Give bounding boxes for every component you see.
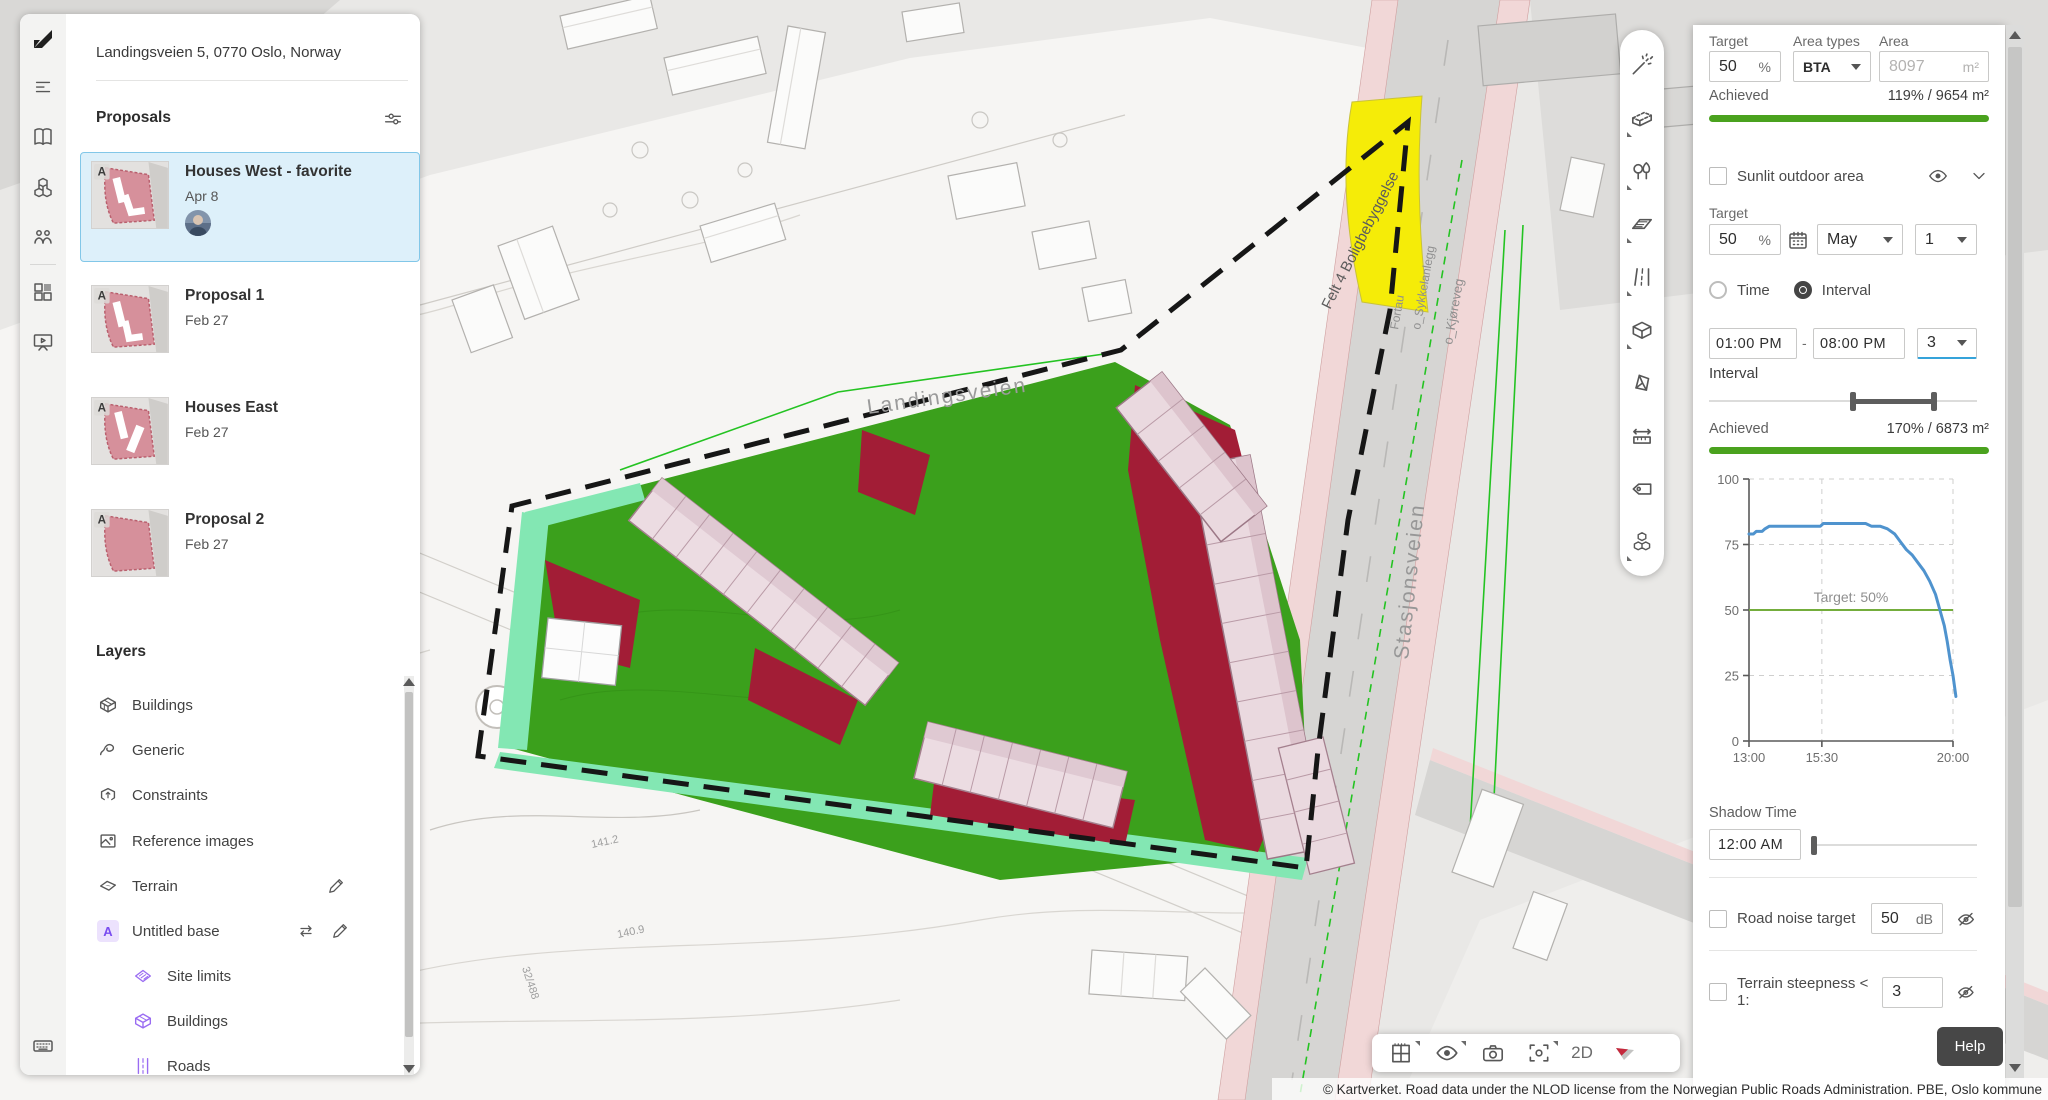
- bta-achieved-row: Achieved119% / 9654 m²: [1709, 88, 1989, 104]
- magic-wand-tool[interactable]: [1622, 38, 1662, 91]
- road-noise-row: Road noise target 50dB: [1709, 903, 1977, 934]
- svg-text:A: A: [98, 290, 107, 303]
- layer-row-site-limits[interactable]: Site limits: [131, 961, 416, 991]
- svg-text:0: 0: [1732, 734, 1739, 749]
- volume-tool[interactable]: [1622, 303, 1662, 356]
- avatar: [185, 210, 211, 236]
- proposal-thumbnail: A: [91, 161, 169, 229]
- map-attribution: © Kartverket. Road data under the NLOD l…: [1272, 1078, 2048, 1100]
- nav-rail: [20, 14, 66, 1075]
- bta-target-input[interactable]: 50%: [1709, 51, 1781, 82]
- time-radio-label: Time: [1737, 282, 1770, 299]
- sunlight-chart: 025507510013:0015:3020:00Target: 50%: [1703, 473, 1993, 773]
- roads-icon: [131, 1054, 155, 1075]
- terrain-steepness-input[interactable]: 3: [1882, 977, 1943, 1008]
- layer-row-generic[interactable]: Generic: [96, 735, 416, 765]
- svg-text:100: 100: [1717, 473, 1739, 487]
- swap-icon[interactable]: [296, 921, 316, 941]
- proposal-title: Proposal 2: [185, 511, 264, 529]
- shadow-time-label: Shadow Time: [1709, 805, 1797, 821]
- constraints-icon: [96, 783, 120, 807]
- divider: [96, 80, 408, 81]
- svg-text:A: A: [98, 514, 107, 527]
- buildings-icon: [131, 1009, 155, 1033]
- interval-hours-select[interactable]: 3: [1917, 328, 1977, 359]
- svg-text:Target: 50%: Target: 50%: [1814, 589, 1889, 605]
- day-select[interactable]: 1: [1915, 224, 1977, 255]
- visibility-eye-icon[interactable]: [1927, 165, 1949, 187]
- camera-tool[interactable]: [1470, 1036, 1516, 1070]
- help-button[interactable]: Help: [1937, 1027, 2003, 1066]
- area-plan-tool[interactable]: [1378, 1036, 1424, 1070]
- svg-text:75: 75: [1725, 538, 1739, 553]
- analysis-panel: Target Area types Area 50% BTA 8097m² Ac…: [1693, 25, 2005, 1100]
- left-sidebar-panel: Landingsveien 5, 0770 Oslo, Norway Propo…: [20, 14, 420, 1075]
- prism-tool[interactable]: [1622, 356, 1662, 409]
- label-tag-tool[interactable]: [1622, 462, 1662, 515]
- proposal-card-proposal-1[interactable]: A Proposal 1 Feb 27: [80, 276, 420, 368]
- interval-radio-label: Interval: [1822, 282, 1871, 299]
- generic-icon: [96, 738, 120, 762]
- svg-text:50: 50: [1725, 603, 1739, 618]
- site-limits-icon: [131, 964, 155, 988]
- interval-slider-handle-start[interactable]: [1850, 392, 1856, 411]
- svg-text:25: 25: [1725, 669, 1739, 684]
- apps-grid-icon[interactable]: [26, 275, 60, 309]
- eye-off-icon[interactable]: [1955, 908, 1977, 930]
- design-toolbar: [1620, 30, 1664, 576]
- present-icon[interactable]: [26, 325, 60, 359]
- sun-target-label: Target: [1709, 205, 1748, 221]
- proposal-thumbnail: A: [91, 509, 169, 577]
- proposals-title: Proposals: [96, 109, 171, 127]
- interval-radio[interactable]: [1794, 281, 1812, 299]
- calendar-icon[interactable]: [1786, 228, 1810, 252]
- layers-scrollbar[interactable]: [404, 676, 414, 1075]
- svg-text:13:00: 13:00: [1733, 750, 1766, 765]
- interval-slider-label: Interval: [1709, 365, 1758, 382]
- layer-row-reference-images[interactable]: Reference images: [96, 826, 416, 856]
- area-types-label: Area types: [1793, 33, 1860, 49]
- sun-achieved-bar: [1709, 447, 1989, 454]
- keyboard-shortcuts-icon[interactable]: [26, 1029, 60, 1063]
- project-address[interactable]: Landingsveien 5, 0770 Oslo, Norway: [96, 44, 341, 61]
- sunlit-checkbox[interactable]: [1709, 167, 1727, 185]
- terrain-steepness-checkbox[interactable]: [1709, 983, 1727, 1001]
- compass-north-arrow[interactable]: [1602, 1036, 1648, 1070]
- building-tool[interactable]: [1622, 91, 1662, 144]
- target-label: Target: [1709, 33, 1748, 49]
- shadow-time-input[interactable]: 12:00 AM: [1709, 829, 1801, 860]
- proposals-panel-icon[interactable]: [26, 70, 60, 104]
- time-range-separator: -: [1802, 335, 1807, 351]
- base-a-badge: A: [96, 919, 120, 943]
- application-window: Landingsveien Stasjonsveien Felt 4 Bolig…: [0, 0, 2048, 1100]
- edit-pencil-icon[interactable]: [330, 921, 350, 941]
- divider: [1709, 950, 1977, 951]
- vegetation-tool[interactable]: [1622, 144, 1662, 197]
- road-tool[interactable]: [1622, 250, 1662, 303]
- proposals-filter-icon[interactable]: [376, 102, 410, 136]
- mode-2d-button[interactable]: 2D: [1562, 1036, 1602, 1070]
- time-radio[interactable]: [1709, 281, 1727, 299]
- svg-text:20:00: 20:00: [1937, 750, 1970, 765]
- layers-title: Layers: [96, 643, 146, 661]
- sun-target-input[interactable]: 50%: [1709, 224, 1781, 255]
- proposal-date: Apr 8: [185, 188, 352, 204]
- month-select[interactable]: May: [1817, 224, 1903, 255]
- bta-achieved-bar: [1709, 115, 1989, 122]
- view-toolbar: 2D: [1372, 1034, 1680, 1072]
- chevron-down-icon: [1851, 64, 1861, 70]
- proposal-date: Feb 27: [185, 536, 264, 552]
- interval-end-time-input[interactable]: 08:00 PM: [1813, 328, 1905, 359]
- area-value-input[interactable]: 8097m²: [1879, 51, 1989, 82]
- proposal-thumbnail: A: [91, 397, 169, 465]
- library-icon[interactable]: [26, 120, 60, 154]
- chevron-down-icon: [1883, 237, 1893, 243]
- eye-off-icon[interactable]: [1955, 981, 1977, 1003]
- panel-scrollbar[interactable]: [2006, 25, 2024, 1078]
- proposal-date: Feb 27: [185, 312, 264, 328]
- area-label: Area: [1879, 33, 1909, 49]
- forma-logo-icon[interactable]: [26, 22, 60, 56]
- chevron-down-icon: [1957, 340, 1967, 346]
- terrain-steepness-row: Terrain steepness < 1: 3: [1709, 975, 1977, 1009]
- interval-range-slider[interactable]: [1709, 400, 1977, 402]
- road-noise-input[interactable]: 50dB: [1871, 903, 1943, 934]
- terrain-icon: [96, 874, 120, 898]
- buildings-icon: [96, 693, 120, 717]
- divider: [1709, 877, 1977, 878]
- sunlit-label: Sunlit outdoor area: [1737, 168, 1864, 185]
- proposal-date: Feb 27: [185, 424, 278, 440]
- proposal-card-houses-west[interactable]: A Houses West - favorite Apr 8: [80, 152, 420, 262]
- shadow-time-slider[interactable]: [1811, 844, 1977, 846]
- svg-text:15:30: 15:30: [1806, 750, 1839, 765]
- rail-divider: [30, 264, 56, 265]
- measure-tool[interactable]: [1622, 409, 1662, 462]
- terrain-steepness-label: Terrain steepness < 1:: [1737, 975, 1882, 1009]
- layer-row-buildings[interactable]: Buildings: [96, 690, 416, 720]
- chevron-down-icon: [1957, 237, 1967, 243]
- sun-achieved-row: Achieved170% / 6873 m²: [1709, 421, 1989, 437]
- add-proposal-icon[interactable]: [414, 102, 420, 136]
- svg-text:A: A: [98, 402, 107, 415]
- proposal-card-proposal-2[interactable]: A Proposal 2 Feb 27: [80, 500, 420, 592]
- interval-start-time-input[interactable]: 01:00 PM: [1709, 328, 1797, 359]
- proposal-card-houses-east[interactable]: A Houses East Feb 27: [80, 388, 420, 480]
- proposal-title: Houses West - favorite: [185, 163, 352, 181]
- blocks-tool[interactable]: [1622, 515, 1662, 568]
- proposal-thumbnail: A: [91, 285, 169, 353]
- time-mode-radios: Time Interval: [1709, 281, 1871, 299]
- shadow-slider-handle[interactable]: [1811, 836, 1817, 855]
- reference-images-icon: [96, 829, 120, 853]
- collapse-chevron-icon[interactable]: [1969, 166, 1989, 186]
- area-type-select[interactable]: BTA: [1793, 51, 1871, 82]
- collaboration-icon[interactable]: [26, 220, 60, 254]
- proposal-title: Proposal 1: [185, 287, 264, 305]
- visibility-tool[interactable]: [1424, 1036, 1470, 1070]
- road-noise-checkbox[interactable]: [1709, 910, 1727, 928]
- layer-row-buildings-base[interactable]: Buildings: [131, 1006, 416, 1036]
- layer-row-terrain[interactable]: Terrain: [96, 871, 416, 901]
- proposal-title: Houses East: [185, 399, 278, 417]
- sunlit-section-header: Sunlit outdoor area: [1709, 165, 1989, 187]
- layer-row-constraints[interactable]: Constraints: [96, 780, 416, 810]
- edit-pencil-icon[interactable]: [326, 876, 346, 896]
- layer-row-roads[interactable]: Roads: [131, 1051, 416, 1075]
- svg-text:A: A: [98, 166, 107, 179]
- assets-icon[interactable]: [26, 170, 60, 204]
- zone-tool[interactable]: [1622, 197, 1662, 250]
- road-noise-label: Road noise target: [1737, 910, 1855, 927]
- focus-selection-tool[interactable]: [1516, 1036, 1562, 1070]
- layer-row-untitled-base[interactable]: A Untitled base: [96, 916, 416, 946]
- interval-slider-handle-end[interactable]: [1931, 392, 1937, 411]
- left-panel-content: Landingsveien 5, 0770 Oslo, Norway Propo…: [66, 14, 420, 1075]
